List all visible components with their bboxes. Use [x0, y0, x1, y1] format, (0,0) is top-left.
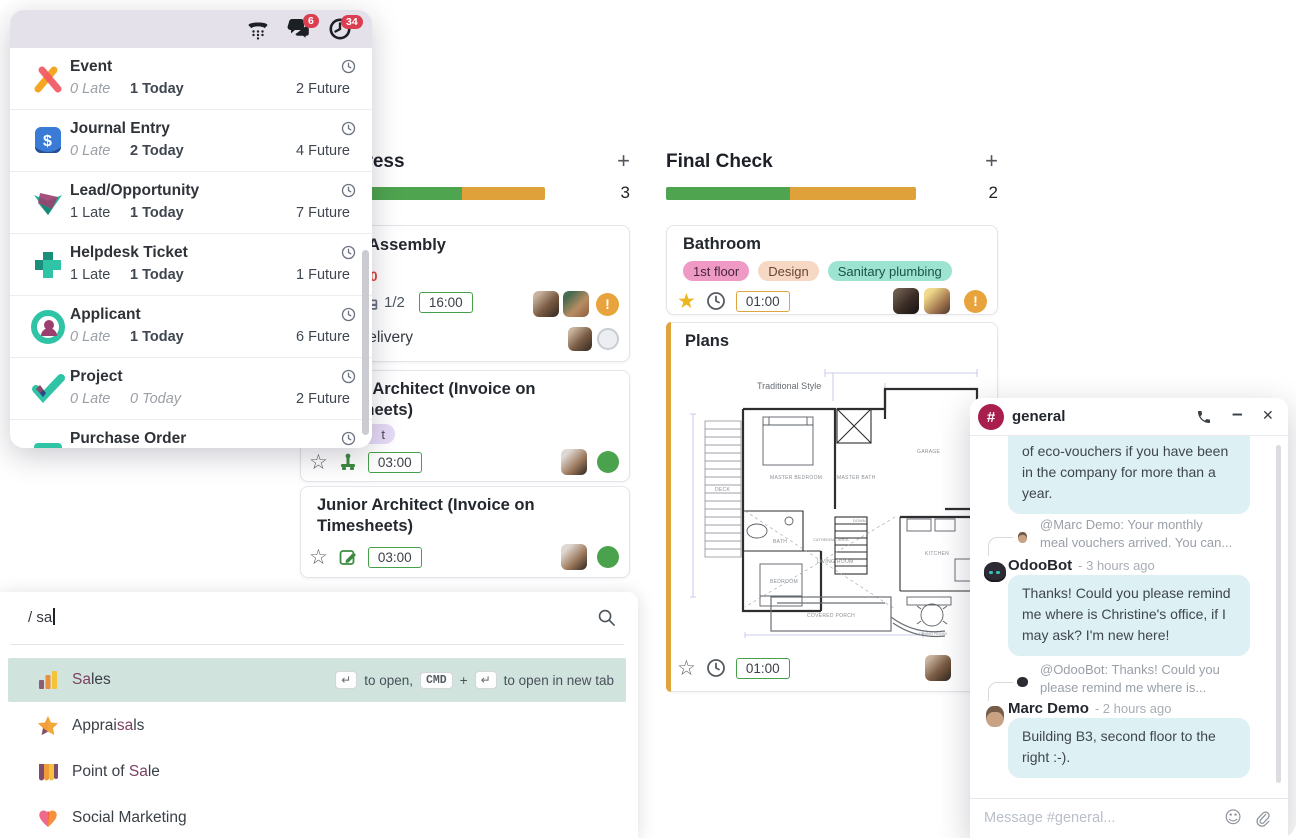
enter-key-badge: ↵ [475, 671, 497, 689]
chat-scrollbar[interactable] [1276, 445, 1281, 783]
column-title-final-check: Final Check [666, 151, 773, 173]
reply-connector [988, 537, 1013, 556]
helpdesk-app-icon [30, 247, 66, 283]
plan-master-bath-label: MASTER BATH [837, 475, 876, 481]
activity-row-lead-opportunity[interactable]: Lead/Opportunity 1 Late 1 Today 7 Future [10, 172, 372, 234]
author-name[interactable]: OdooBot- 3 hours ago [1008, 557, 1155, 574]
reply-quote[interactable]: @OdooBot: Thanks! Could you please remin… [1040, 661, 1220, 696]
row-clock-icon[interactable] [341, 369, 356, 384]
activities-count-badge: 34 [341, 15, 363, 29]
tag-design: Design [758, 261, 818, 281]
plan-style-label: Traditional Style [757, 381, 821, 391]
allocated-hours-badge[interactable]: 03:00 [368, 547, 422, 568]
allocated-hours-badge[interactable]: 01:00 [736, 291, 790, 312]
recruitment-app-icon [30, 309, 66, 345]
assignee-avatar[interactable] [561, 449, 587, 475]
plan-porch-label: COVERED PORCH [807, 613, 855, 619]
purchase-app-icon [30, 433, 66, 448]
kanban-card-junior-architect[interactable]: Junior Architect (Invoice on Timesheets)… [300, 486, 630, 578]
plan-bath-label: BATH [773, 539, 787, 545]
stage-progress-bar[interactable] [666, 187, 916, 200]
plan-living-room-label: LIVING ROOM [817, 559, 854, 565]
palette-result-appraisals[interactable]: Appraisals [8, 704, 626, 748]
row-clock-icon[interactable] [341, 431, 356, 446]
result-label: Appraisals [72, 717, 144, 735]
panel-scrollbar[interactable] [362, 250, 369, 435]
plan-cathedral-label: CATHEDRAL AREA [813, 537, 849, 542]
priority-star-icon[interactable]: ★ [677, 291, 696, 312]
priority-star-icon[interactable]: ☆ [309, 547, 328, 568]
palette-result-social-marketing[interactable]: Social Marketing [8, 796, 626, 838]
add-card-button[interactable]: + [545, 148, 630, 174]
chat-header[interactable]: # general – ✕ [970, 398, 1288, 436]
reply-connector [988, 682, 1013, 701]
event-app-icon [30, 61, 66, 97]
edit-timesheet-icon[interactable] [338, 547, 358, 567]
tag-sanitary-plumbing: Sanitary plumbing [828, 261, 952, 281]
card-title-line1: Junior Architect (Invoice on [317, 495, 535, 516]
message-bubble: Building B3, second floor to the right :… [1008, 718, 1250, 778]
progress-orange-segment[interactable] [790, 187, 916, 200]
appraisals-app-icon [36, 714, 60, 738]
command-palette-input[interactable]: / sa [28, 608, 55, 626]
clock-icon[interactable] [706, 658, 726, 678]
subtask-state-dot[interactable] [597, 328, 619, 350]
overdue-warning-icon: ! [596, 293, 619, 316]
plan-garage-label: GARAGE [917, 449, 941, 455]
column-record-count: 2 [913, 183, 998, 203]
divider [10, 644, 624, 645]
column-record-count: 3 [545, 183, 630, 203]
state-dot-done[interactable] [597, 546, 619, 568]
card-title: Plans [685, 331, 729, 352]
robot-eyes [989, 571, 993, 574]
marc-face [986, 706, 1004, 727]
open-hint: ↵ to open, CMD + ↵ to open in new tab [335, 671, 626, 689]
channel-title: general [1012, 408, 1065, 425]
plan-dining-label: DINING ROOM [919, 631, 947, 636]
card-color-bar [666, 322, 671, 692]
activity-row-journal-entry[interactable]: $ Journal Entry 0 Late 2 Today 4 Future [10, 110, 372, 172]
voip-phone-icon[interactable] [246, 17, 270, 41]
sales-app-icon [36, 668, 60, 692]
plan-deck-label: DECK [715, 487, 730, 493]
overdue-warning-icon: ! [964, 290, 987, 313]
card-title-line2: Timesheets) [317, 516, 413, 537]
assignee-avatar[interactable] [563, 291, 589, 317]
project-app-icon [30, 371, 66, 407]
activity-panel-header: 6 34 [10, 10, 372, 48]
robot-face [984, 562, 1006, 582]
kanban-card-bathroom[interactable]: Bathroom 1st floor Design Sanitary plumb… [666, 225, 998, 315]
message-timestamp: - 2 hours ago [1095, 701, 1172, 716]
message-bubble: Thanks! Could you please remind me where… [1008, 575, 1250, 656]
channel-hash-icon: # [978, 404, 1004, 430]
command-palette: / sa Sales ↵ to open, CMD + ↵ to open in… [0, 592, 638, 838]
assignee-avatar[interactable] [533, 291, 559, 317]
row-clock-icon[interactable] [341, 121, 356, 136]
point-of-sale-app-icon [36, 760, 60, 784]
row-clock-icon[interactable] [341, 245, 356, 260]
close-icon[interactable]: ✕ [1262, 408, 1274, 424]
activity-row-project[interactable]: Project 0 Late 0 Today 2 Future [10, 358, 372, 420]
minimize-icon[interactable]: – [1232, 404, 1243, 426]
palette-result-sales[interactable]: Sales ↵ to open, CMD + ↵ to open in new … [8, 658, 626, 702]
chat-composer: Message #general... ☺ [970, 798, 1288, 838]
palette-result-point-of-sale[interactable]: Point of Sale [8, 750, 626, 794]
card-title: Bathroom [683, 234, 761, 255]
call-icon[interactable] [1196, 409, 1212, 425]
result-label: Sales [72, 671, 111, 689]
subtask-count: 1/2 [384, 294, 405, 311]
assignee-avatar[interactable] [561, 544, 587, 570]
message-bubble: of eco-vouchers if you have been in the … [1008, 436, 1250, 514]
allocated-hours-badge[interactable]: 03:00 [368, 452, 422, 473]
timesheet-icon[interactable] [338, 452, 358, 472]
activity-panel: 6 34 Event 0 Late 1 Today 2 Future $ Jou… [10, 10, 372, 448]
reply-quote[interactable]: @Marc Demo: Your monthly meal vouchers a… [1040, 516, 1232, 551]
screenshot-canvas: In Progress + 3 Assembly 0 1/2 16:00 ! D… [0, 0, 1296, 838]
enter-key-badge: ↵ [335, 671, 357, 689]
result-label: Social Marketing [72, 809, 187, 827]
plan-down-label: DOWN [853, 518, 866, 523]
emoji-icon[interactable]: ☺ [1224, 808, 1242, 828]
plan-master-bedroom-label: MASTER BEDROOM [770, 475, 822, 481]
social-marketing-app-icon [36, 806, 60, 830]
kanban-card-plans[interactable]: Plans Traditional Style D [666, 322, 998, 692]
assignee-avatar[interactable] [893, 288, 919, 314]
assignee-avatar[interactable] [925, 655, 951, 681]
progress-orange-segment[interactable] [462, 187, 545, 200]
message-timestamp: - 3 hours ago [1078, 558, 1155, 573]
priority-star-icon[interactable]: ☆ [677, 658, 696, 679]
search-icon [597, 608, 616, 627]
result-label: Point of Sale [72, 763, 160, 781]
card-title: Assembly [368, 235, 446, 256]
attachment-icon[interactable] [1255, 810, 1272, 829]
allocated-hours-badge[interactable]: 16:00 [419, 292, 473, 313]
assignee-avatar[interactable] [924, 288, 950, 314]
author-name[interactable]: Marc Demo- 2 hours ago [1008, 700, 1171, 717]
text-caret [53, 608, 55, 625]
activity-row-purchase-order[interactable]: Purchase Order [10, 420, 372, 448]
activity-row-event[interactable]: Event 0 Late 1 Today 2 Future [10, 48, 372, 110]
tag-1st-floor: 1st floor [683, 261, 749, 281]
plan-kitchen-label: KITCHEN [925, 551, 949, 557]
row-clock-icon[interactable] [341, 183, 356, 198]
journal-entry-app-icon: $ [30, 123, 66, 159]
row-clock-icon[interactable] [341, 307, 356, 322]
row-clock-icon[interactable] [341, 59, 356, 74]
activity-row-helpdesk-ticket[interactable]: Helpdesk Ticket 1 Late 1 Today 1 Future [10, 234, 372, 296]
subtask-assignee-avatar[interactable] [568, 327, 592, 351]
plan-bedroom-label: BEDROOM [770, 579, 798, 585]
add-card-button[interactable]: + [913, 148, 998, 174]
chat-window-general: # general – ✕ of eco-vouchers if you hav… [970, 398, 1288, 838]
progress-green-segment[interactable] [666, 187, 790, 200]
floor-plan-image: Traditional Style DECK [685, 359, 983, 641]
state-dot-done[interactable] [597, 451, 619, 473]
messages-count-badge: 6 [303, 14, 319, 28]
svg-text:$: $ [43, 133, 52, 150]
composer-input[interactable]: Message #general... [984, 810, 1115, 826]
crm-app-icon [30, 185, 66, 221]
activity-row-applicant[interactable]: Applicant 0 Late 1 Today 6 Future [10, 296, 372, 358]
allocated-hours-badge[interactable]: 01:00 [736, 658, 790, 679]
priority-star-icon[interactable]: ☆ [309, 452, 328, 473]
cmd-key-badge: CMD [420, 672, 453, 689]
clock-icon[interactable] [706, 291, 726, 311]
